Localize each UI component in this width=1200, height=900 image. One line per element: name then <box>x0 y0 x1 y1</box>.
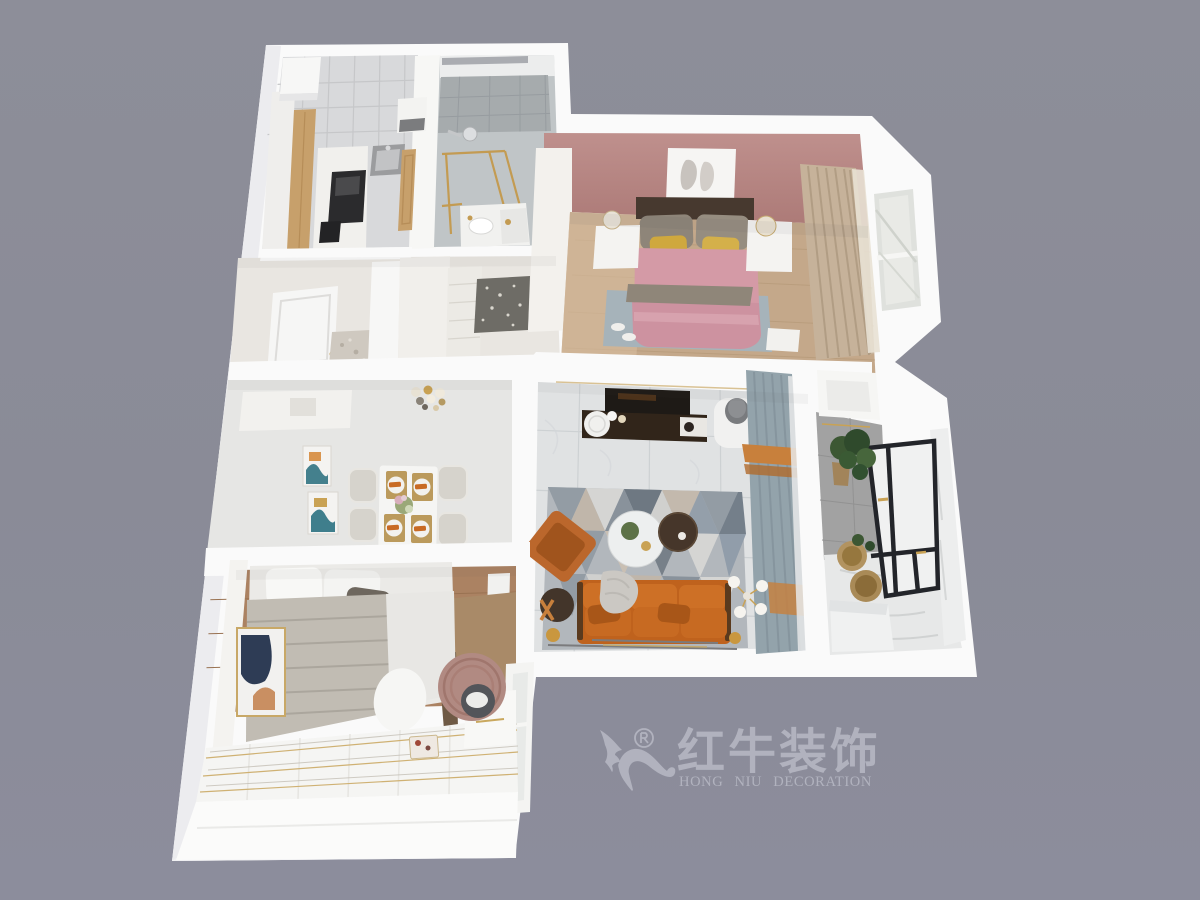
svg-text:HONG NIU DECORATION: HONG NIU DECORATION <box>679 774 872 790</box>
svg-text:红牛装饰: 红牛装饰 <box>677 726 881 779</box>
